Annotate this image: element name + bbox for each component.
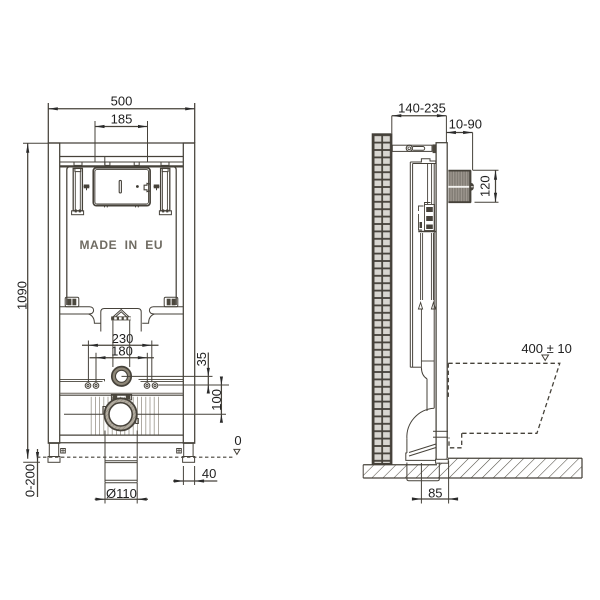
svg-text:100: 100 <box>209 389 224 411</box>
svg-text:Ø110: Ø110 <box>106 486 137 501</box>
svg-text:400 ± 10: 400 ± 10 <box>521 341 572 356</box>
svg-text:40: 40 <box>202 466 216 481</box>
svg-text:35: 35 <box>194 352 209 366</box>
svg-text:120: 120 <box>478 175 493 197</box>
svg-text:140-235: 140-235 <box>398 101 446 116</box>
svg-text:0: 0 <box>234 433 241 448</box>
svg-text:10-90: 10-90 <box>449 117 482 132</box>
svg-text:0-200: 0-200 <box>23 464 38 497</box>
svg-text:85: 85 <box>428 486 442 501</box>
svg-text:1090: 1090 <box>14 281 29 310</box>
svg-text:500: 500 <box>111 94 133 109</box>
svg-text:185: 185 <box>111 111 133 126</box>
svg-text:MADE IN EU: MADE IN EU <box>79 238 163 252</box>
